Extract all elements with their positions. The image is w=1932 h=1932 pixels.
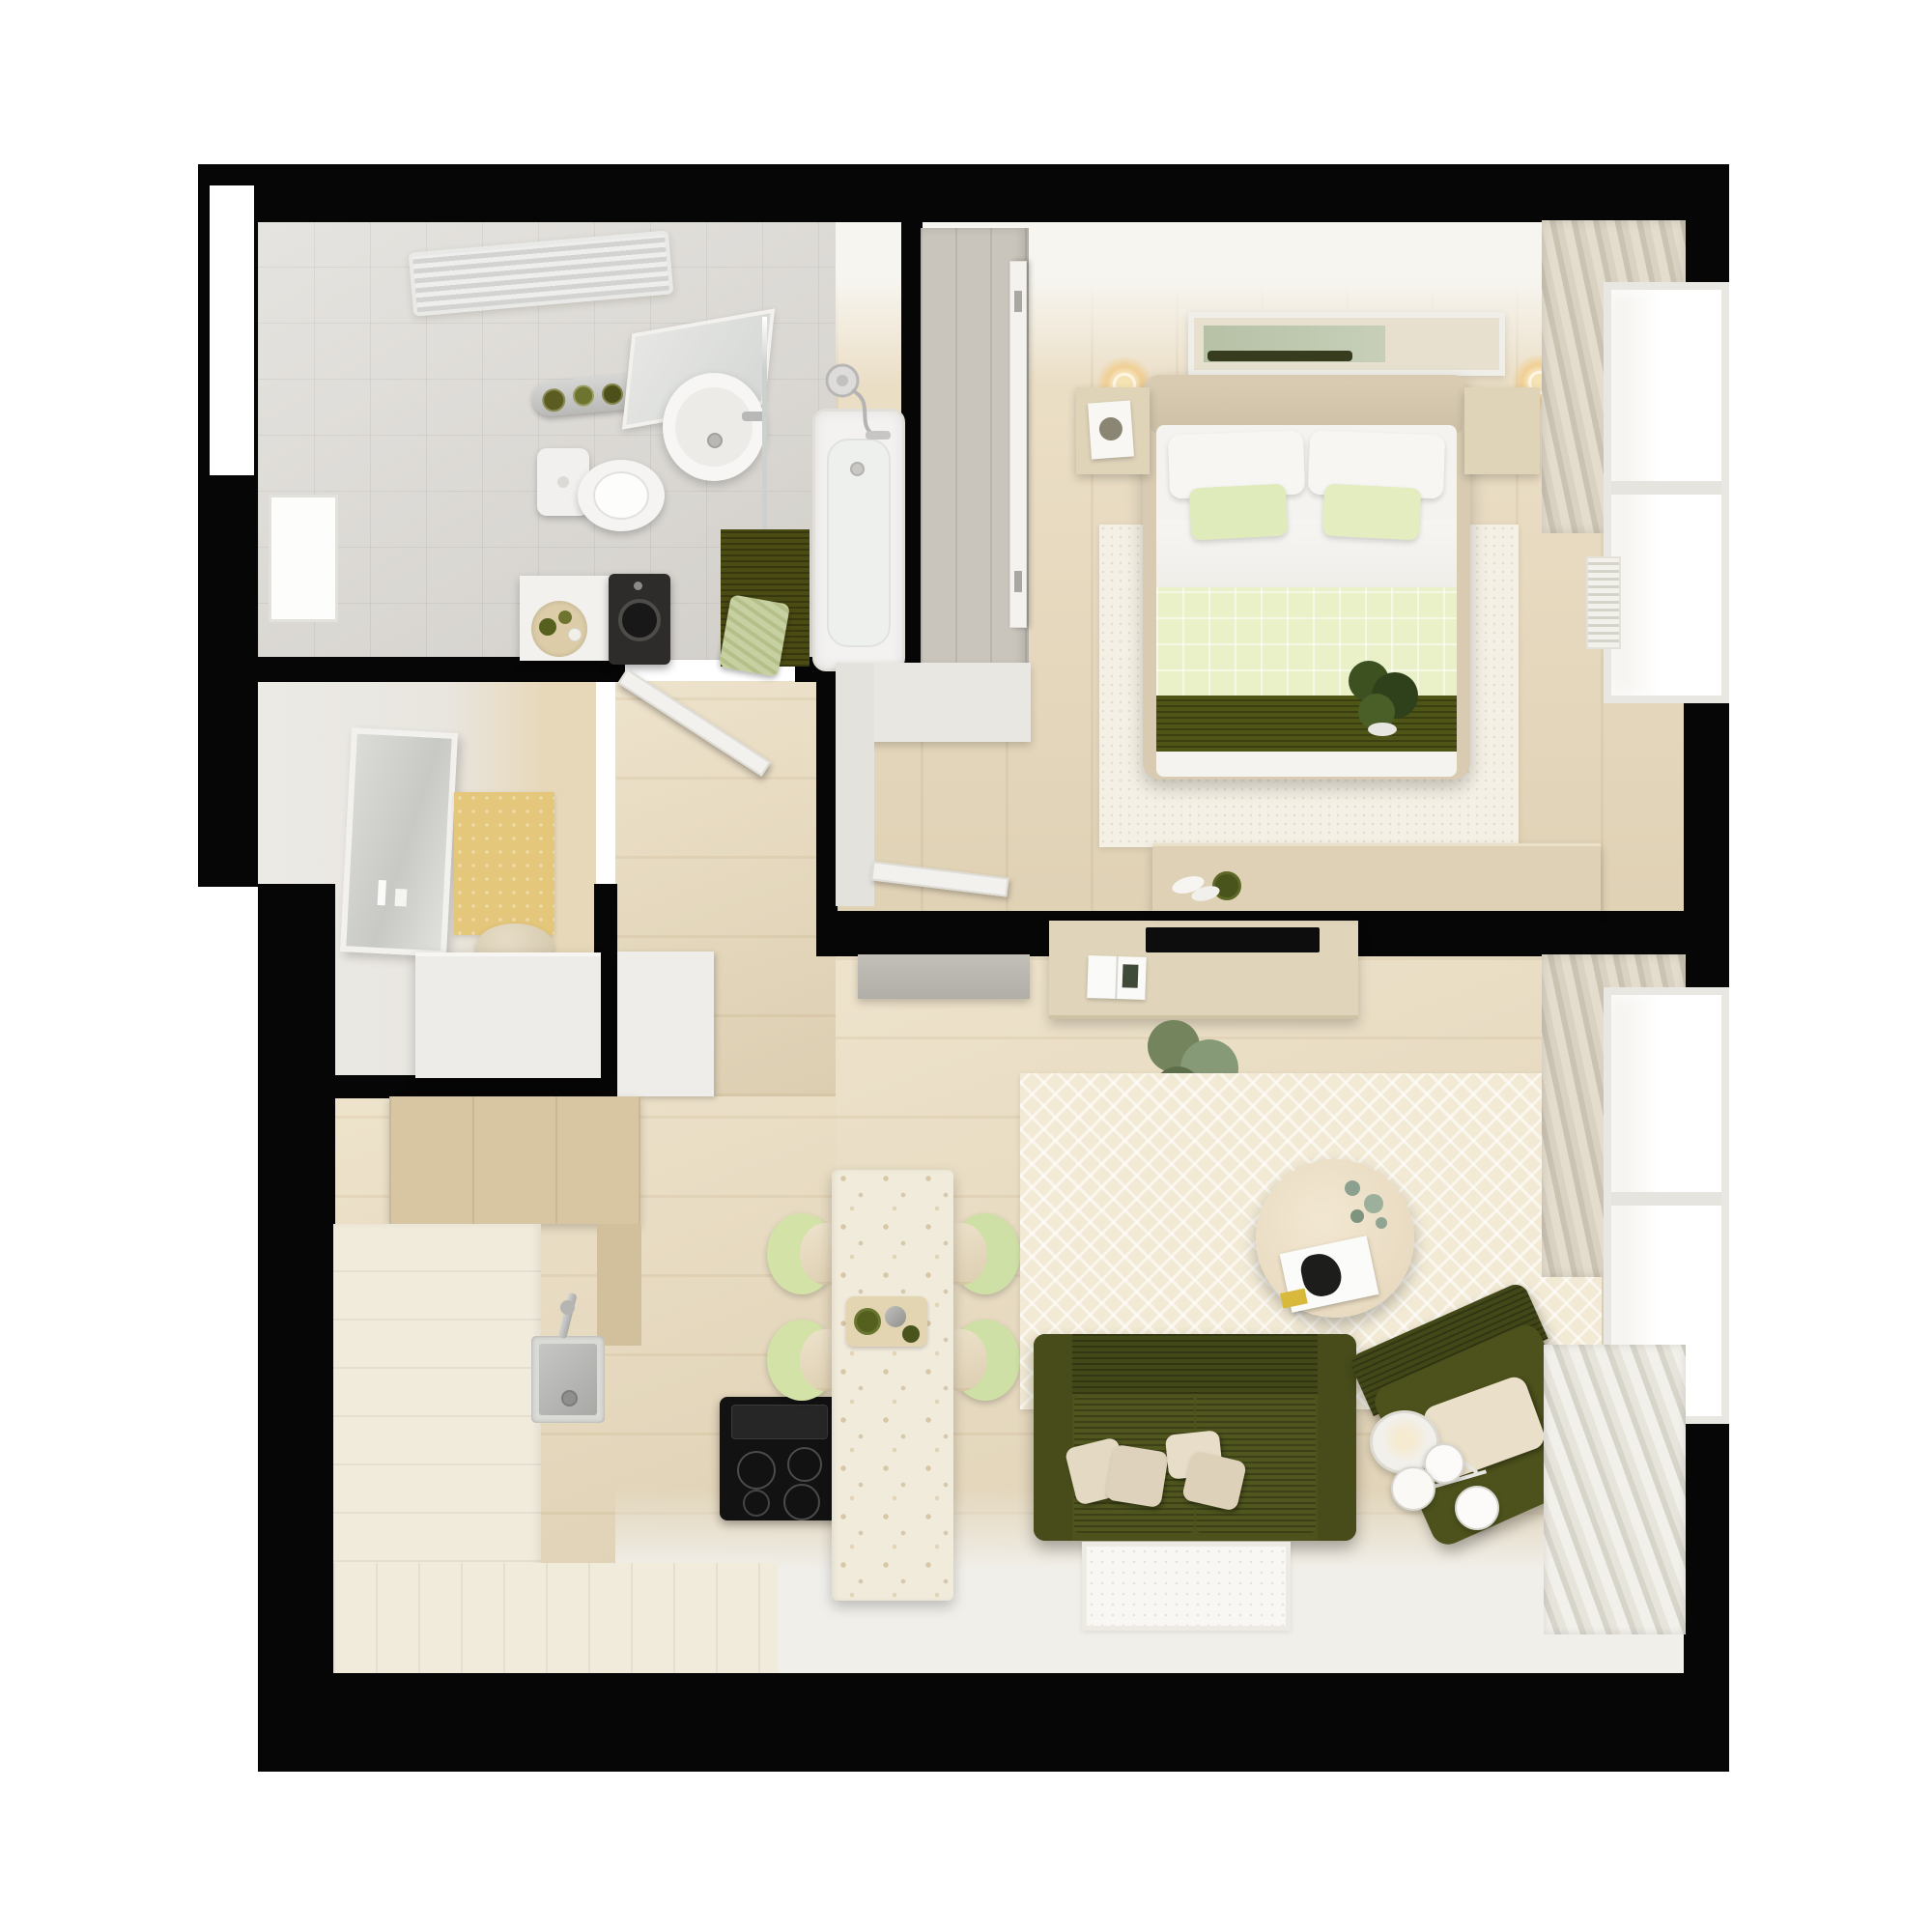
living-long-radiator: [1544, 1345, 1686, 1634]
toilet-bowl: [578, 460, 665, 531]
hall-yellow-rug: [454, 792, 554, 935]
wall-top: [198, 164, 1729, 222]
toilet-seat: [593, 471, 649, 520]
bedroom-window: [1604, 282, 1729, 703]
bedroom-door-leaf: [1009, 261, 1027, 628]
bed: [1143, 375, 1470, 780]
burner-3: [743, 1490, 770, 1517]
washer-door: [618, 599, 661, 641]
door-hinge-top: [1014, 291, 1022, 312]
dining-table: [832, 1170, 953, 1601]
bedroom-radiator: [1586, 556, 1621, 649]
foot-sheet-fold: [1156, 752, 1457, 777]
wall-bedroom-left: [816, 657, 838, 916]
sofa-backrest: [1034, 1334, 1356, 1394]
tray-cup-small: [902, 1325, 920, 1343]
tray-cup-steel: [885, 1306, 906, 1327]
nightstand-right: [1464, 387, 1540, 474]
cooktop: [720, 1397, 839, 1520]
sprig-4: [1376, 1217, 1387, 1229]
sink-drain: [561, 1390, 578, 1406]
wall-hall-bottom: [299, 1075, 618, 1098]
pillow-green-right: [1322, 483, 1422, 540]
nook-wardrobe-side: [836, 663, 874, 906]
shampoo-bottle: [541, 387, 566, 412]
kitchen-sink: [531, 1336, 605, 1423]
balcony-door-opening: [210, 185, 254, 475]
pillow-green-left: [1189, 483, 1289, 540]
door-hinge-bottom: [1014, 571, 1022, 592]
nightstand-left: [1076, 387, 1150, 474]
basin-bowl: [675, 387, 753, 467]
basin-drain: [707, 433, 723, 448]
magazine-art: [1122, 964, 1139, 988]
washbasin: [663, 373, 765, 481]
lotion-bottle: [601, 383, 624, 406]
wall-bench: [858, 954, 1030, 999]
tv: [1146, 927, 1320, 952]
burner-1: [737, 1451, 776, 1490]
soap-bottle: [572, 384, 595, 408]
artwork-dark-stroke: [1207, 351, 1352, 361]
front-door: [269, 495, 338, 622]
green-towel: [719, 594, 790, 677]
bathtub-drain: [850, 462, 865, 476]
bedroom-desk: [1152, 843, 1601, 911]
tray-cup-olive: [854, 1308, 881, 1335]
nightstand-book: [1088, 401, 1134, 460]
wall-left-lower: [258, 884, 335, 1729]
mirror-reflection-vase: [378, 880, 386, 905]
washing-machine: [609, 574, 670, 665]
framed-artwork: [1188, 312, 1505, 376]
bath-side-table: [520, 576, 611, 661]
floor-plan: [0, 0, 1932, 1932]
tray-jar-olive: [539, 618, 556, 636]
sprig-1: [1345, 1180, 1360, 1196]
hand-shower: [817, 359, 895, 456]
washer-dial: [634, 582, 642, 590]
book-cover-circle: [1098, 416, 1123, 441]
open-magazine: [1087, 955, 1146, 1000]
sprig-2: [1364, 1194, 1383, 1213]
lamp-globe-3: [1455, 1486, 1499, 1530]
wall-bottom: [258, 1673, 1729, 1772]
bedroom-plant-pot: [1368, 723, 1397, 736]
hall-shoe-cabinet: [415, 952, 601, 1078]
tray-jar-green: [558, 611, 572, 624]
flush-button: [557, 476, 569, 488]
hall-partition: [617, 952, 714, 1096]
lamp-globe-2: [1391, 1466, 1435, 1511]
burner-2: [787, 1447, 822, 1482]
leaning-mirror: [340, 727, 458, 956]
kitchen-faucet-base: [560, 1300, 575, 1315]
tall-cabinets: [389, 1096, 640, 1224]
bedroom-window-mullion: [1611, 481, 1721, 495]
mirror-reflection-vase-2: [395, 889, 408, 907]
serving-tray: [846, 1296, 927, 1347]
burner-4: [783, 1484, 820, 1520]
sofa: [1034, 1334, 1356, 1541]
sofa-arm-left: [1034, 1334, 1072, 1541]
living-window-mullion: [1611, 1192, 1721, 1206]
tray-jar-white: [568, 628, 582, 641]
sofa-cushion-2: [1105, 1444, 1169, 1508]
cooktop-hood: [731, 1405, 828, 1439]
counter-bottom-run: [333, 1563, 778, 1673]
white-floor-mat: [1082, 1542, 1291, 1631]
magazine-spine: [1115, 956, 1119, 999]
tall-cabinet-side: [597, 1224, 641, 1346]
sprig-3: [1350, 1209, 1364, 1223]
